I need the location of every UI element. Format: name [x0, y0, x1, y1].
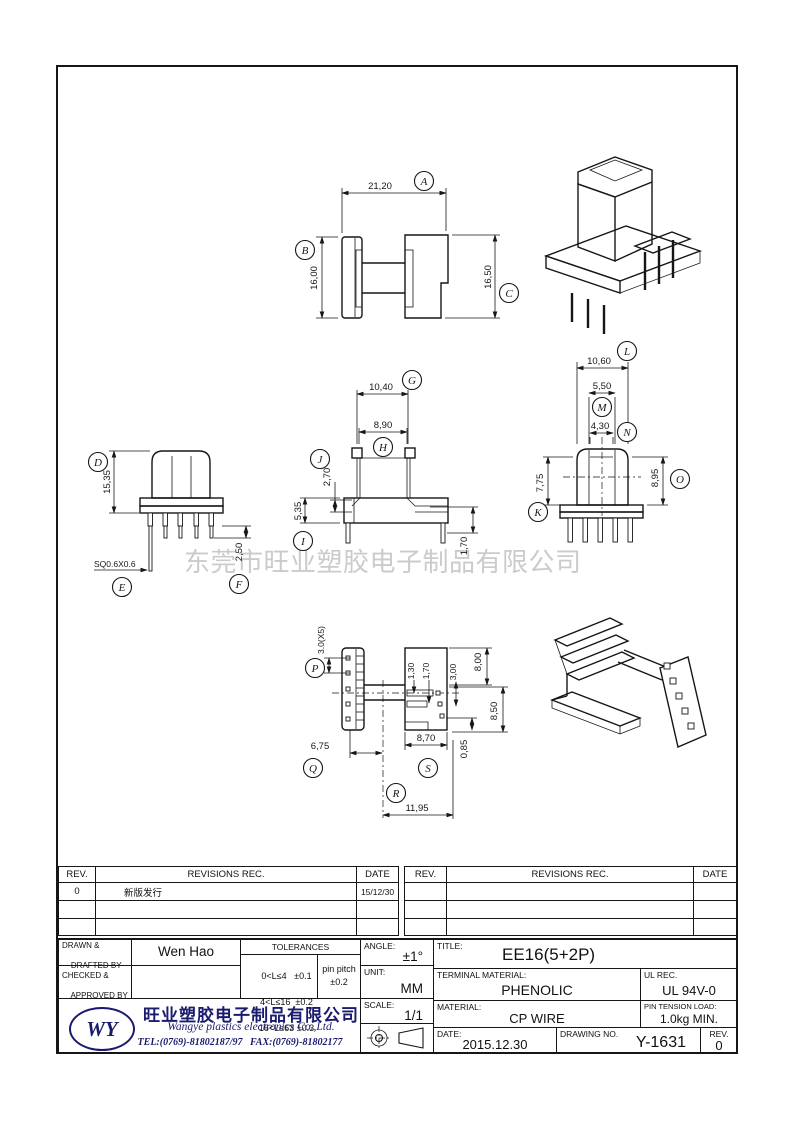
checked-label-line1: CHECKED &	[62, 971, 109, 980]
svg-text:F: F	[235, 579, 243, 591]
revision-table-right: REV. REVISIONS REC. DATE	[404, 866, 737, 936]
svg-text:16,00: 16,00	[309, 266, 320, 290]
balloon-p: P	[306, 659, 325, 678]
svg-text:B: B	[302, 245, 309, 257]
company-name-en: Wangye plastics electronics Co.,Ltd.	[143, 1021, 359, 1033]
svg-text:21,20: 21,20	[368, 181, 392, 192]
material-value: CP WIRE	[434, 1011, 640, 1026]
date-cell: DATE: 2015.12.30	[433, 1027, 557, 1054]
bottom-view: 3.0(X5) 1,30 1,70 3,00 8,00 8,50 0,85 8,…	[311, 626, 508, 819]
date-header: DATE	[357, 867, 398, 883]
drawing-no-value: Y-1631	[557, 1034, 700, 1052]
balloon-b: B	[296, 241, 315, 260]
svg-text:1,70: 1,70	[459, 537, 470, 556]
iso-view-upper	[546, 157, 700, 334]
unit-cell: UNIT: MM	[360, 965, 434, 999]
pin-tension-cell: PIN TENSION LOAD: 1.0kg MIN.	[640, 1000, 738, 1028]
pin-pitch-label: pin pitch	[322, 964, 356, 974]
rev-cell	[405, 919, 447, 936]
balloon-n: N	[618, 423, 637, 442]
company-tel-fax: TEL:(0769)-81802187/97 FAX:(0769)-818021…	[119, 1037, 361, 1048]
svg-text:N: N	[622, 427, 631, 439]
revision-desc: 新版发行	[96, 883, 357, 901]
company-logo-text: WY	[86, 1017, 118, 1042]
revision-date	[694, 901, 736, 919]
drawn-label-line1: DRAWN &	[62, 941, 99, 950]
terminal-material-label: TERMINAL MATERIAL:	[437, 970, 526, 980]
svg-text:H: H	[378, 442, 388, 454]
rear-view: 10,60 5,50 4,30 7,75 8,95	[535, 356, 668, 542]
drawn-by-value-cell: Wen Hao	[131, 939, 241, 966]
drawn-by-label-cell: DRAWN & DRAFTED BY	[58, 939, 132, 966]
svg-text:8,70: 8,70	[417, 733, 436, 744]
svg-text:O: O	[676, 474, 684, 486]
svg-text:8,50: 8,50	[489, 702, 500, 721]
balloon-h: H	[374, 438, 393, 457]
tolerances-title-cell: TOLERANCES	[240, 939, 361, 955]
iso-view-lower	[552, 618, 706, 747]
svg-text:D: D	[93, 457, 102, 469]
rev-header: REV.	[59, 867, 96, 883]
balloon-g: G	[403, 371, 422, 390]
svg-text:8,00: 8,00	[473, 653, 484, 672]
svg-text:1,30: 1,30	[406, 662, 416, 679]
svg-text:0,85: 0,85	[459, 740, 470, 759]
rev-cell	[59, 919, 96, 936]
pin-tension-value: 1.0kg MIN.	[641, 1012, 737, 1026]
svg-text:S: S	[425, 763, 431, 775]
svg-text:1,70: 1,70	[421, 662, 431, 679]
svg-text:SQ0.6X0.6: SQ0.6X0.6	[94, 559, 136, 569]
balloon-s: S	[419, 759, 438, 778]
company-block: WY 旺业塑胶电子制品有限公司 Wangye plastics electron…	[58, 998, 361, 1054]
balloon-o: O	[671, 470, 690, 489]
pin-tension-label: PIN TENSION LOAD:	[644, 1002, 716, 1012]
balloon-f: F	[230, 575, 249, 594]
balloon-j: J	[311, 450, 330, 469]
svg-text:6,75: 6,75	[311, 741, 330, 752]
svg-text:4,30: 4,30	[591, 421, 610, 432]
svg-text:5,35: 5,35	[293, 502, 304, 521]
balloon-l: L	[618, 342, 637, 361]
revision-desc	[447, 883, 694, 901]
revision-desc	[96, 901, 357, 919]
balloon-e: E	[113, 578, 132, 597]
svg-text:Q: Q	[309, 763, 317, 775]
balloon-i: I	[294, 532, 313, 551]
date-value: 2015.12.30	[434, 1037, 556, 1052]
svg-text:5,50: 5,50	[593, 381, 612, 392]
rev-cell	[405, 883, 447, 901]
svg-text:L: L	[623, 346, 630, 358]
svg-text:M: M	[596, 402, 607, 414]
svg-text:16,50: 16,50	[483, 265, 494, 289]
revision-desc	[96, 919, 357, 936]
svg-text:8,90: 8,90	[374, 420, 393, 431]
date-header: DATE	[694, 867, 736, 883]
rev-no-value: 0	[701, 1038, 737, 1053]
title-block: DRAWN & DRAFTED BY Wen Hao CHECKED & APP…	[57, 938, 737, 1053]
revisions-rec-header: REVISIONS REC.	[96, 867, 357, 883]
tolerances-values-cell: 0<L≤4 ±0.1 4<L≤16 ±0.2 16<L≤63 ±0.3	[240, 954, 318, 999]
revision-date	[357, 919, 398, 936]
rev-cell: 0	[59, 883, 96, 901]
svg-text:10,60: 10,60	[587, 356, 611, 367]
ul-rec-label: UL REC.	[644, 970, 677, 980]
svg-text:10,40: 10,40	[369, 382, 393, 393]
rev-no-cell: REV. 0	[700, 1027, 738, 1054]
svg-text:7,75: 7,75	[535, 474, 546, 493]
third-angle-projection-icon	[361, 1024, 433, 1053]
angle-value: ±1°	[361, 949, 433, 964]
svg-text:2,50: 2,50	[234, 543, 245, 562]
unit-value: MM	[361, 981, 433, 996]
svg-text:A: A	[420, 176, 428, 188]
pin-pitch-cell: pin pitch ±0.2	[317, 954, 361, 999]
revision-date	[357, 901, 398, 919]
scale-value: 1/1	[361, 1008, 433, 1023]
ul-rec-cell: UL REC. UL 94V-0	[640, 968, 738, 1001]
drawing-no-cell: DRAWING NO. Y-1631	[556, 1027, 701, 1054]
balloon-q: Q	[304, 759, 323, 778]
angle-cell: ANGLE: ±1°	[360, 939, 434, 966]
tolerances-title: TOLERANCES	[241, 940, 360, 952]
terminal-material-value: PHENOLIC	[434, 982, 640, 998]
svg-text:R: R	[392, 788, 400, 800]
tolerance-line1: 0<L≤4 ±0.1	[261, 971, 311, 981]
revision-date: 15/12/30	[357, 883, 398, 901]
rev-header: REV.	[405, 867, 447, 883]
terminal-material-cell: TERMINAL MATERIAL: PHENOLIC	[433, 968, 641, 1001]
balloon-k: K	[529, 503, 548, 522]
revisions-rec-header: REVISIONS REC.	[447, 867, 694, 883]
svg-text:K: K	[533, 507, 542, 519]
rev-cell	[59, 901, 96, 919]
part-title: EE16(5+2P)	[434, 945, 737, 965]
top-view: 21,20 16,00 16,50	[309, 181, 500, 318]
balloon-a: A	[415, 172, 434, 191]
svg-text:3,00: 3,00	[448, 663, 458, 680]
balloon-d: D	[89, 453, 108, 472]
revision-desc	[447, 901, 694, 919]
revision-desc	[447, 919, 694, 936]
svg-text:C: C	[505, 288, 513, 300]
drawing-sheet: { "watermark": "东莞市旺业塑胶电子制品有限公司", "ballo…	[0, 0, 793, 1122]
balloon-r: R	[387, 784, 406, 803]
checked-by-label-cell: CHECKED & APPROVED BY	[58, 965, 132, 999]
scale-cell: SCALE: 1/1	[360, 998, 434, 1024]
revision-date	[694, 883, 736, 901]
svg-text:15,35: 15,35	[102, 470, 113, 494]
svg-text:P: P	[311, 663, 319, 675]
rev-cell	[405, 901, 447, 919]
svg-text:3.0(X5): 3.0(X5)	[316, 626, 326, 654]
title-cell: TITLE: EE16(5+2P)	[433, 939, 738, 969]
pin-pitch-value: ±0.2	[330, 977, 347, 987]
balloon-c: C	[500, 284, 519, 303]
revision-date	[694, 919, 736, 936]
svg-text:2,70: 2,70	[322, 468, 333, 487]
revision-table-left: REV. REVISIONS REC. DATE 0 新版发行 15/12/30	[58, 866, 399, 936]
checked-by-value-cell	[131, 965, 241, 999]
svg-text:8,95: 8,95	[650, 469, 661, 488]
ul-rec-value: UL 94V-0	[641, 983, 737, 998]
balloon-m: M	[593, 398, 612, 417]
svg-text:E: E	[118, 582, 126, 594]
svg-text:G: G	[408, 375, 416, 387]
drawn-by-name: Wen Hao	[132, 944, 240, 959]
svg-text:11,95: 11,95	[405, 803, 428, 814]
unit-label: UNIT:	[364, 967, 385, 977]
material-cell: MATERIAL: CP WIRE	[433, 1000, 641, 1028]
projection-symbol-cell	[360, 1023, 434, 1054]
